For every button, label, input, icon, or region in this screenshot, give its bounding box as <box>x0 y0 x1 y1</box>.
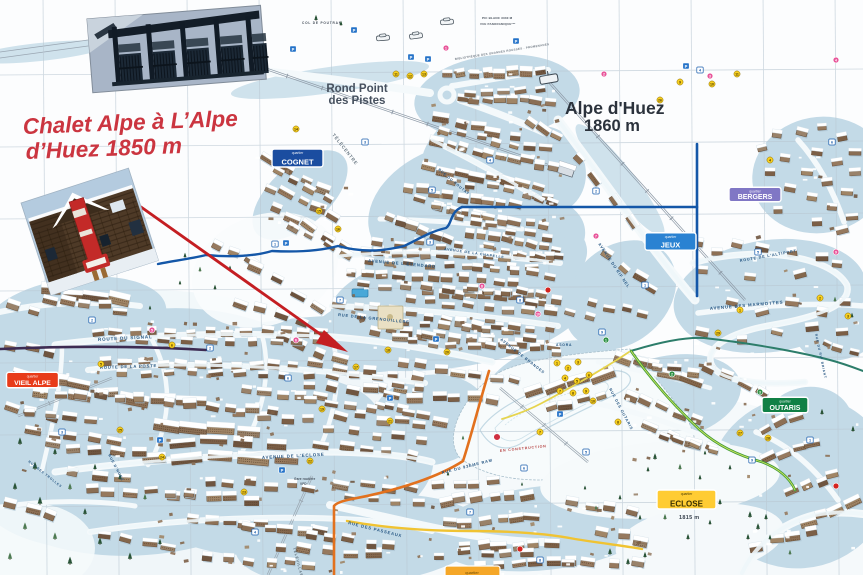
svg-text:COL DE POUTRAN: COL DE POUTRAN <box>302 21 342 25</box>
svg-text:1815 m: 1815 m <box>679 515 699 521</box>
svg-text:1: 1 <box>644 284 646 288</box>
svg-text:3: 3 <box>61 431 63 435</box>
svg-text:9: 9 <box>601 331 603 335</box>
svg-text:P: P <box>292 47 295 52</box>
svg-text:quartier: quartier <box>681 492 693 496</box>
svg-text:12: 12 <box>408 75 412 79</box>
svg-text:ASORA: ASORA <box>556 343 572 347</box>
svg-text:23: 23 <box>242 491 246 495</box>
svg-text:5: 5 <box>100 363 102 367</box>
svg-text:9: 9 <box>835 251 837 255</box>
svg-text:20: 20 <box>445 351 449 355</box>
svg-text:2: 2 <box>603 73 605 77</box>
svg-text:10: 10 <box>536 313 540 317</box>
svg-text:4: 4 <box>564 377 566 381</box>
svg-text:8: 8 <box>617 421 619 425</box>
svg-text:3: 3 <box>709 75 711 79</box>
svg-text:1: 1 <box>556 362 558 366</box>
svg-text:P: P <box>281 468 284 473</box>
svg-text:1: 1 <box>445 47 447 51</box>
svg-text:18: 18 <box>386 349 390 353</box>
svg-text:16: 16 <box>336 228 340 232</box>
svg-text:2: 2 <box>209 347 211 351</box>
svg-text:11: 11 <box>735 73 739 77</box>
svg-text:28: 28 <box>766 437 770 441</box>
svg-text:14: 14 <box>294 128 298 132</box>
svg-text:P: P <box>435 337 438 342</box>
svg-text:1: 1 <box>809 439 811 443</box>
svg-text:JEUX: JEUX <box>661 241 681 250</box>
svg-text:19: 19 <box>320 408 324 412</box>
svg-text:3: 3 <box>759 391 761 395</box>
svg-text:17: 17 <box>354 366 358 370</box>
svg-text:P: P <box>353 28 356 33</box>
svg-text:6: 6 <box>295 339 297 343</box>
svg-text:VIEIL ALPE: VIEIL ALPE <box>14 380 51 387</box>
svg-text:P: P <box>427 57 430 62</box>
svg-text:21: 21 <box>388 420 392 424</box>
svg-text:5: 5 <box>576 380 578 384</box>
svg-text:3: 3 <box>847 315 849 319</box>
svg-text:4: 4 <box>835 59 837 63</box>
svg-text:6: 6 <box>287 377 289 381</box>
svg-text:9: 9 <box>751 459 753 463</box>
svg-text:P: P <box>685 64 688 69</box>
svg-text:27: 27 <box>738 432 742 436</box>
svg-text:9: 9 <box>585 390 587 394</box>
svg-text:des Pistes: des Pistes <box>329 95 386 107</box>
svg-text:9: 9 <box>679 81 681 85</box>
svg-text:Alpe d'Huez: Alpe d'Huez <box>565 98 665 118</box>
svg-text:5: 5 <box>431 189 433 193</box>
svg-text:OUTARIS: OUTARIS <box>770 405 801 412</box>
svg-text:22: 22 <box>308 460 312 464</box>
svg-text:29: 29 <box>716 332 720 336</box>
svg-text:8: 8 <box>572 392 574 396</box>
svg-text:5: 5 <box>585 451 587 455</box>
svg-text:5: 5 <box>151 329 153 333</box>
svg-text:1: 1 <box>605 339 607 343</box>
svg-text:P: P <box>410 55 413 60</box>
svg-text:3: 3 <box>364 141 366 145</box>
svg-text:10: 10 <box>710 83 714 87</box>
svg-text:25: 25 <box>118 429 122 433</box>
svg-text:8: 8 <box>519 299 521 303</box>
svg-text:1: 1 <box>739 309 741 313</box>
svg-text:quartier: quartier <box>749 189 761 193</box>
svg-text:6: 6 <box>523 467 525 471</box>
svg-text:7: 7 <box>469 511 471 515</box>
svg-text:quartier: quartier <box>465 570 479 575</box>
svg-text:7: 7 <box>539 431 541 435</box>
svg-text:5: 5 <box>757 251 759 255</box>
svg-text:2: 2 <box>595 190 597 194</box>
svg-text:Rond Point: Rond Point <box>326 83 387 95</box>
svg-text:quartier: quartier <box>779 399 791 403</box>
svg-text:10: 10 <box>591 400 595 404</box>
svg-text:13: 13 <box>422 73 426 77</box>
svg-text:PIC BLANC 3330 M: PIC BLANC 3330 M <box>482 16 513 20</box>
svg-text:BERGERS: BERGERS <box>738 194 773 201</box>
svg-text:8: 8 <box>539 559 541 563</box>
svg-text:P: P <box>515 39 518 44</box>
svg-text:7: 7 <box>595 235 597 239</box>
svg-text:11: 11 <box>394 73 398 77</box>
svg-text:VUE PANORAMIQUE***: VUE PANORAMIQUE*** <box>480 22 516 26</box>
svg-text:8: 8 <box>481 285 483 289</box>
svg-text:6: 6 <box>588 374 590 378</box>
svg-text:4: 4 <box>769 159 771 163</box>
svg-text:7: 7 <box>559 390 561 394</box>
svg-text:3: 3 <box>429 241 431 245</box>
svg-text:2: 2 <box>567 367 569 371</box>
svg-text:1: 1 <box>274 243 276 247</box>
svg-text:24: 24 <box>160 456 164 460</box>
svg-text:P: P <box>159 438 162 443</box>
svg-text:7: 7 <box>339 299 341 303</box>
svg-text:P: P <box>389 396 392 401</box>
svg-text:VFD: VFD <box>300 482 307 486</box>
svg-text:2: 2 <box>91 319 93 323</box>
svg-text:26: 26 <box>658 99 662 103</box>
svg-text:quartier: quartier <box>27 374 39 378</box>
svg-text:P: P <box>285 241 288 246</box>
svg-text:COGNET: COGNET <box>281 157 314 166</box>
svg-text:6: 6 <box>171 344 173 348</box>
svg-text:quartier: quartier <box>665 235 677 239</box>
svg-text:15: 15 <box>317 210 321 214</box>
svg-text:2: 2 <box>671 373 673 377</box>
svg-text:quartier: quartier <box>292 151 304 155</box>
svg-text:3: 3 <box>577 361 579 365</box>
svg-text:ECLOSE: ECLOSE <box>670 499 704 508</box>
svg-text:P: P <box>559 412 562 417</box>
svg-text:Gare routière: Gare routière <box>294 477 315 481</box>
svg-text:6: 6 <box>831 141 833 145</box>
svg-text:2: 2 <box>819 297 821 301</box>
svg-text:1860 m: 1860 m <box>584 117 640 135</box>
